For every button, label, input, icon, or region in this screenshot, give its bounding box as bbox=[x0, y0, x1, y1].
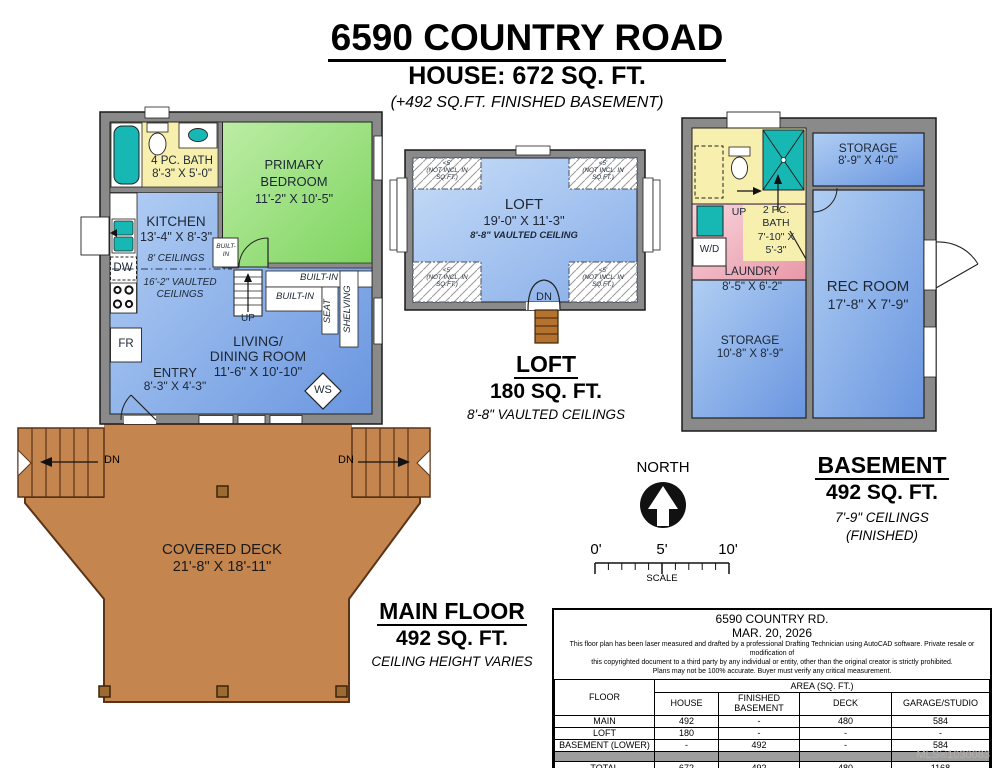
scale-label: SCALE bbox=[632, 574, 692, 584]
deck-dims: 21'-8" X 18'-11" bbox=[142, 560, 302, 576]
table-disclaimer: This floor plan has been laser measured … bbox=[554, 640, 990, 679]
scale-tick-0: 0' bbox=[584, 542, 608, 558]
floor-plan-page: 6590 COUNTRY ROAD HOUSE: 672 SQ. FT. (+4… bbox=[0, 0, 994, 768]
wood-stove-label: WS bbox=[308, 385, 338, 397]
basement-bath-label-1: 2 PC. bbox=[748, 205, 804, 216]
north-arrow-icon bbox=[640, 482, 686, 528]
basement-ceiling-label: 7'-9" CEILINGS bbox=[807, 511, 957, 526]
basement-area: 492 SQ. FT. bbox=[807, 482, 957, 505]
row-main-basement: - bbox=[719, 715, 800, 727]
entry-label: ENTRY bbox=[130, 366, 220, 380]
total-label: TOTAL bbox=[555, 761, 655, 768]
col-header-garage-studio: GARAGE/STUDIO bbox=[892, 692, 990, 715]
basement-bath-label-2: BATH bbox=[748, 218, 804, 229]
bedroom-dims: 11'-2" X 10'-5" bbox=[228, 193, 360, 207]
loft-corner-bl-3: SQ.FT.) bbox=[415, 282, 479, 289]
basement-bath-dims-1: 7'-10" X bbox=[748, 232, 804, 243]
dishwasher-label: DW bbox=[109, 262, 137, 274]
deck-label: COVERED DECK bbox=[142, 542, 302, 558]
rec-room-dims: 17'-8" X 7'-9" bbox=[808, 297, 928, 312]
loft-ceiling-note: 8'-8" VAULTED CEILING bbox=[459, 231, 589, 241]
table-row: MAIN 492 - 480 584 bbox=[555, 715, 990, 727]
loft-ceiling-label: 8'-8" VAULTED CEILINGS bbox=[456, 408, 636, 423]
row-basement-house: - bbox=[655, 739, 719, 751]
storage-bottom-dims: 10'-8" X 8'-9" bbox=[694, 348, 806, 360]
kitchen-ceiling-note: 8' CEILINGS bbox=[126, 254, 226, 265]
deck-dn-right-label: DN bbox=[333, 455, 359, 467]
row-loft-garage: - bbox=[892, 727, 990, 739]
laundry-dims: 8'-5" X 6'-2" bbox=[696, 281, 808, 293]
rec-room-window bbox=[924, 327, 936, 377]
row-loft-basement: - bbox=[719, 727, 800, 739]
scale-tick-5: 5' bbox=[650, 542, 674, 558]
laundry-label: LAUNDRY bbox=[696, 266, 808, 278]
col-header-finished-basement: FINISHED BASEMENT bbox=[719, 692, 800, 715]
row-loft-deck: - bbox=[800, 727, 892, 739]
bedroom-label-1: PRIMARY bbox=[228, 158, 360, 172]
area-info-table: 6590 COUNTRY RD. MAR. 20, 2026 This floo… bbox=[552, 608, 992, 768]
mls-watermark: MLS®1030083 bbox=[872, 749, 990, 761]
deck-dn-left-label: DN bbox=[99, 455, 125, 467]
vaulted-ceiling-note-2: CEILINGS bbox=[130, 290, 230, 301]
loft-dn-stairs bbox=[535, 310, 558, 343]
living-label-1: LIVING/ bbox=[193, 334, 323, 349]
bath-label: 4 PC. BATH bbox=[137, 155, 227, 167]
col-header-deck: DECK bbox=[800, 692, 892, 715]
disclaimer-line-2: this copyrighted document to a third par… bbox=[556, 659, 988, 668]
storage-top-dims: 8'-9" X 4'-0" bbox=[818, 155, 918, 167]
total-house: 672 bbox=[655, 761, 719, 768]
row-main-garage: 584 bbox=[892, 715, 990, 727]
col-header-house: HOUSE bbox=[655, 692, 719, 715]
toilet-icon bbox=[147, 123, 168, 155]
loft-room-dims: 19'-0" X 11'-3" bbox=[474, 214, 574, 228]
built-in-2-label: BUILT-IN bbox=[264, 292, 326, 302]
bath-dims: 8'-3" X 5'-0" bbox=[137, 168, 227, 180]
row-basement-basement: 492 bbox=[719, 739, 800, 751]
main-floor-title: MAIN FLOOR bbox=[377, 599, 527, 626]
page-subtitle: HOUSE: 672 SQ. FT. bbox=[277, 63, 777, 90]
bedroom-label-2: BEDROOM bbox=[228, 175, 360, 189]
fridge-label: FR bbox=[110, 338, 142, 350]
entry-dims: 8'-3" X 4'-3" bbox=[130, 380, 220, 393]
storage-bottom-label: STORAGE bbox=[694, 334, 806, 347]
page-title: 6590 COUNTRY ROAD bbox=[277, 18, 777, 62]
area-header: AREA (SQ. FT.) bbox=[655, 679, 990, 692]
table-date: MAR. 20, 2026 bbox=[554, 626, 990, 640]
row-main-floor: MAIN bbox=[555, 715, 655, 727]
table-address: 6590 COUNTRY RD. bbox=[554, 610, 990, 626]
row-loft-house: 180 bbox=[655, 727, 719, 739]
disclaimer-line-3: Plans may not be 100% accurate. Buyer mu… bbox=[556, 668, 988, 677]
north-label: NORTH bbox=[623, 460, 703, 476]
disclaimer-line-1: This floor plan has been laser measured … bbox=[556, 641, 988, 659]
built-in-top-label: BUILT-IN bbox=[268, 273, 370, 283]
rec-room-label: REC ROOM bbox=[808, 279, 928, 295]
row-main-deck: 480 bbox=[800, 715, 892, 727]
main-floor-area: 492 SQ. FT. bbox=[377, 628, 527, 651]
loft-area: 180 SQ. FT. bbox=[471, 381, 621, 404]
vaulted-ceiling-note-1: 16'-2" VAULTED bbox=[130, 278, 230, 289]
total-row: TOTAL 672 492 480 1168 bbox=[555, 761, 990, 768]
loft-corner-br-3: SQ.FT.) bbox=[571, 282, 635, 289]
kitchen-window bbox=[81, 217, 109, 255]
main-floor-ceiling-label: CEILING HEIGHT VARIES bbox=[352, 655, 552, 670]
basement-bath-dims-2: 5'-3" bbox=[748, 245, 804, 256]
total-garage: 1168 bbox=[892, 761, 990, 768]
stairs-up-label: UP bbox=[236, 314, 260, 325]
shelving-label: SHELVING bbox=[343, 279, 353, 339]
plumbing-vent bbox=[145, 107, 169, 118]
loft-dn-label: DN bbox=[530, 292, 558, 304]
row-loft-floor: LOFT bbox=[555, 727, 655, 739]
row-main-house: 492 bbox=[655, 715, 719, 727]
basement-title: BASEMENT bbox=[807, 453, 957, 480]
built-in-closet-label: BUILT-IN bbox=[214, 243, 238, 259]
loft-corner-tr-3: SQ.FT.) bbox=[571, 175, 635, 182]
laundry-tub bbox=[697, 206, 723, 236]
col-header-floor: FLOOR bbox=[555, 679, 655, 715]
storage-top-label: STORAGE bbox=[818, 142, 918, 155]
loft-room-label: LOFT bbox=[474, 197, 574, 213]
total-basement: 492 bbox=[719, 761, 800, 768]
stairs-up bbox=[234, 270, 262, 316]
basement-finished-label: (FINISHED) bbox=[807, 529, 957, 544]
living-label-2: DINING ROOM bbox=[193, 349, 323, 364]
loft-corner-tl-3: SQ.FT.) bbox=[415, 175, 479, 182]
kitchen-label: KITCHEN bbox=[121, 215, 231, 230]
page-note: (+492 SQ.FT. FINISHED BASEMENT) bbox=[277, 94, 777, 111]
scale-tick-10: 10' bbox=[712, 542, 744, 558]
bath-sink bbox=[179, 123, 217, 148]
basement-exterior-door bbox=[924, 240, 978, 290]
seat-label: SEAT bbox=[323, 291, 333, 331]
loft-title: LOFT bbox=[471, 352, 621, 379]
total-deck: 480 bbox=[800, 761, 892, 768]
washer-dryer-label: W/D bbox=[694, 245, 725, 256]
row-basement-floor: BASEMENT (LOWER) bbox=[555, 739, 655, 751]
table-row: LOFT 180 - - - bbox=[555, 727, 990, 739]
